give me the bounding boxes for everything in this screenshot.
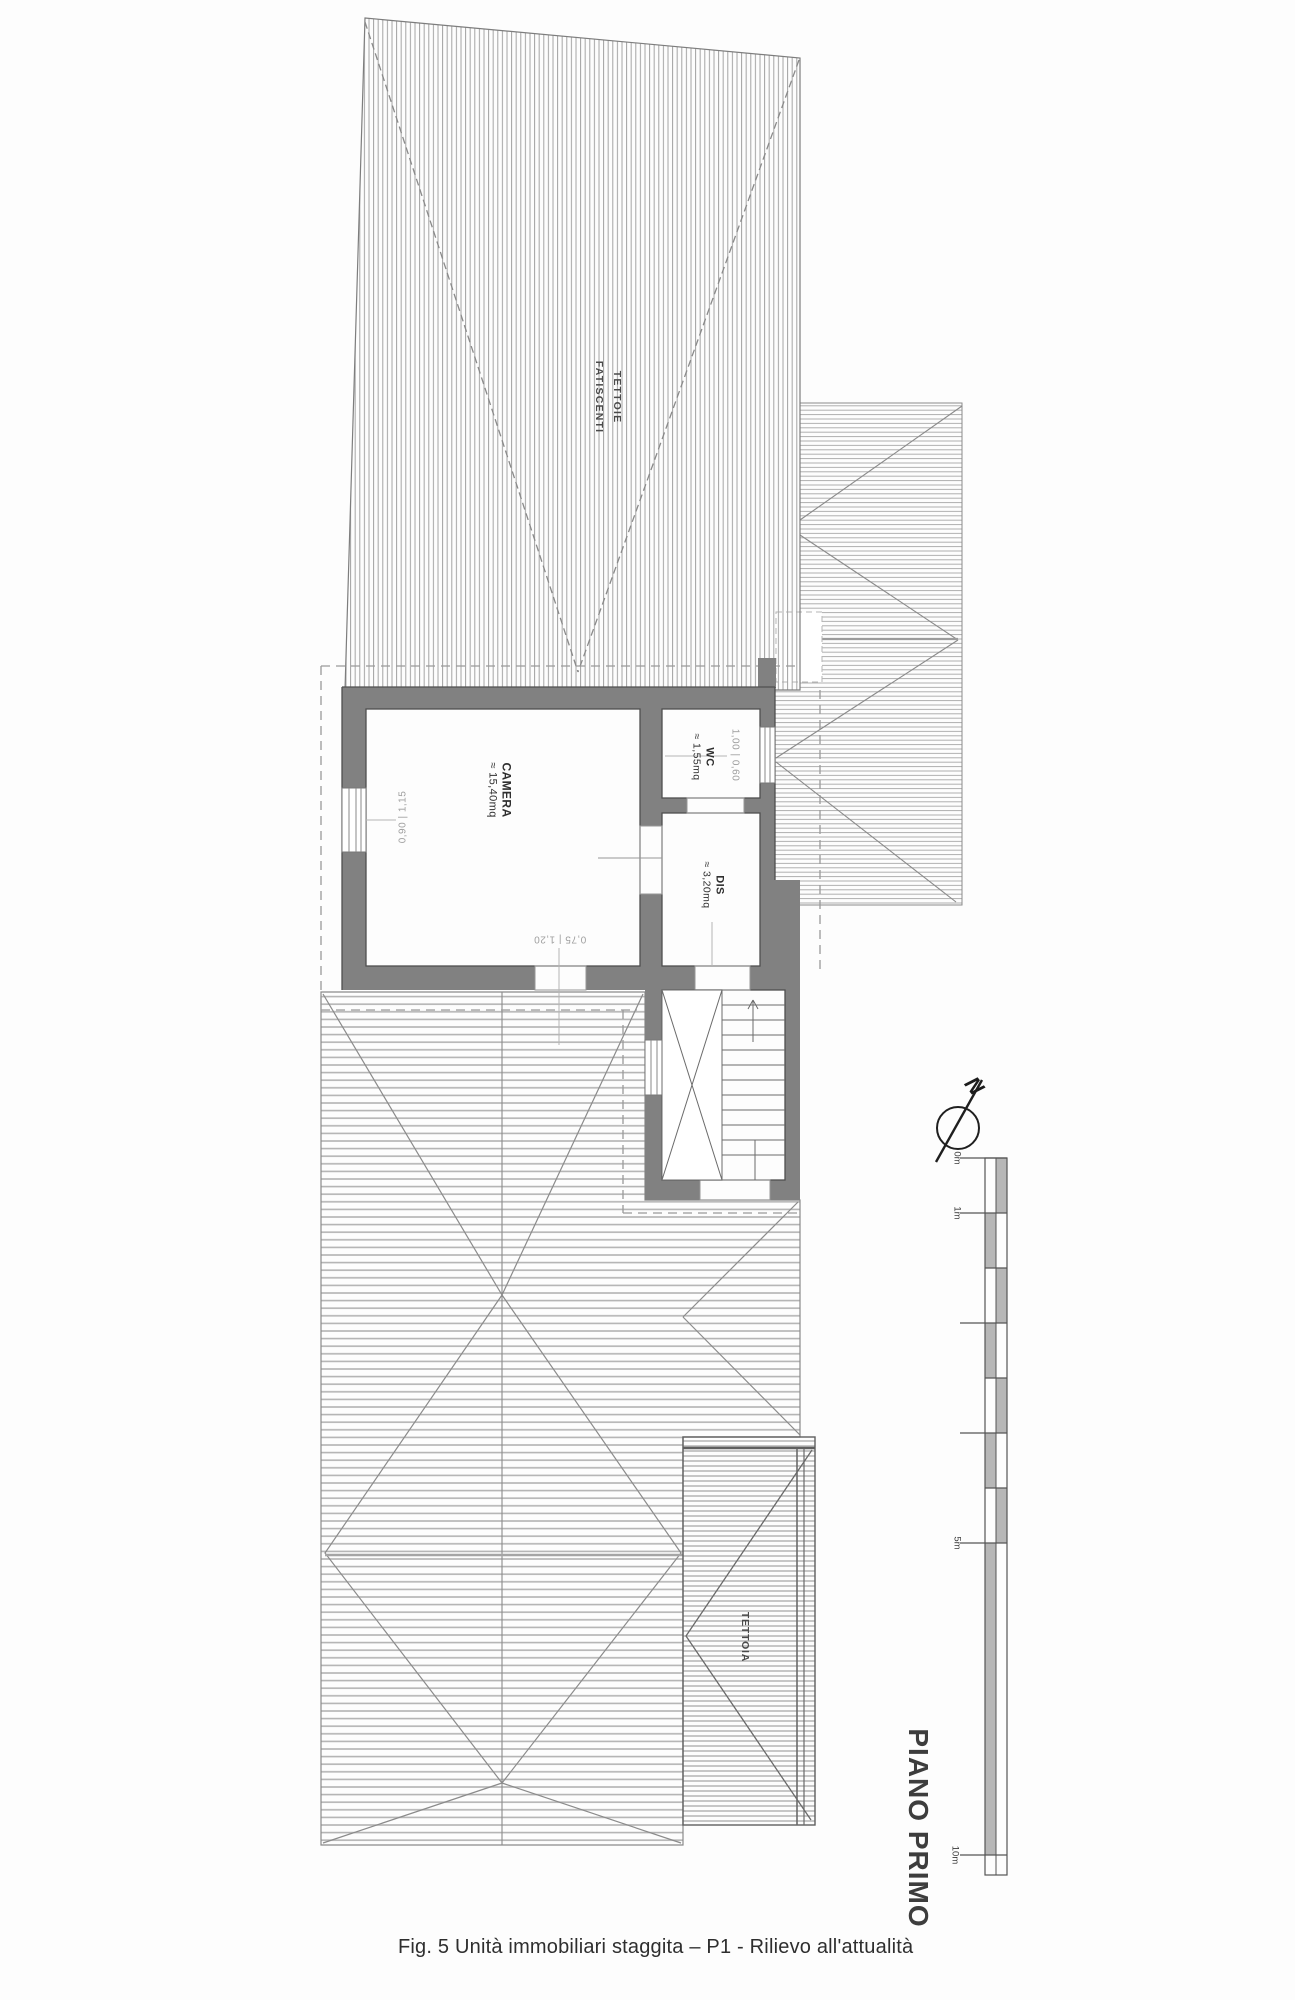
room-label-dis: DIS ≈ 3,20mq xyxy=(701,862,726,909)
top-roof-label: TETTOIE FATISCENTI xyxy=(589,361,625,433)
room-label-camera: CAMERA ≈ 15,40mq xyxy=(487,762,514,818)
scale-label-1m: 1m xyxy=(952,1206,963,1219)
scale-label-10m: 10m xyxy=(950,1846,961,1864)
scanned-plan-page: TETTOIE FATISCENTI CAMERA ≈ 15,40mq WC ≈… xyxy=(0,0,1295,2000)
floor-title: PIANO PRIMO xyxy=(902,1728,934,1927)
dim-window-wc: 1,00 | 0,60 xyxy=(730,729,741,782)
right-roof xyxy=(775,403,962,905)
scale-label-0m: 0m xyxy=(952,1151,963,1164)
figure-caption: Fig. 5 Unità immobiliari staggita – P1 -… xyxy=(398,1936,958,1959)
dim-window-left: 0,90 | 1,15 xyxy=(398,791,409,844)
scale-label-5m: 5m xyxy=(952,1536,963,1549)
room-label-wc: WC ≈ 1,55mq xyxy=(691,734,716,781)
stairs xyxy=(662,990,785,1180)
dim-door-camera: 0,75 | 1,20 xyxy=(534,934,587,945)
floor-plan-drawing xyxy=(0,0,1295,2000)
tettoia-label: TETTOIA xyxy=(735,1612,753,1662)
scale-bar xyxy=(960,1158,1007,1875)
top-roof xyxy=(345,18,800,690)
